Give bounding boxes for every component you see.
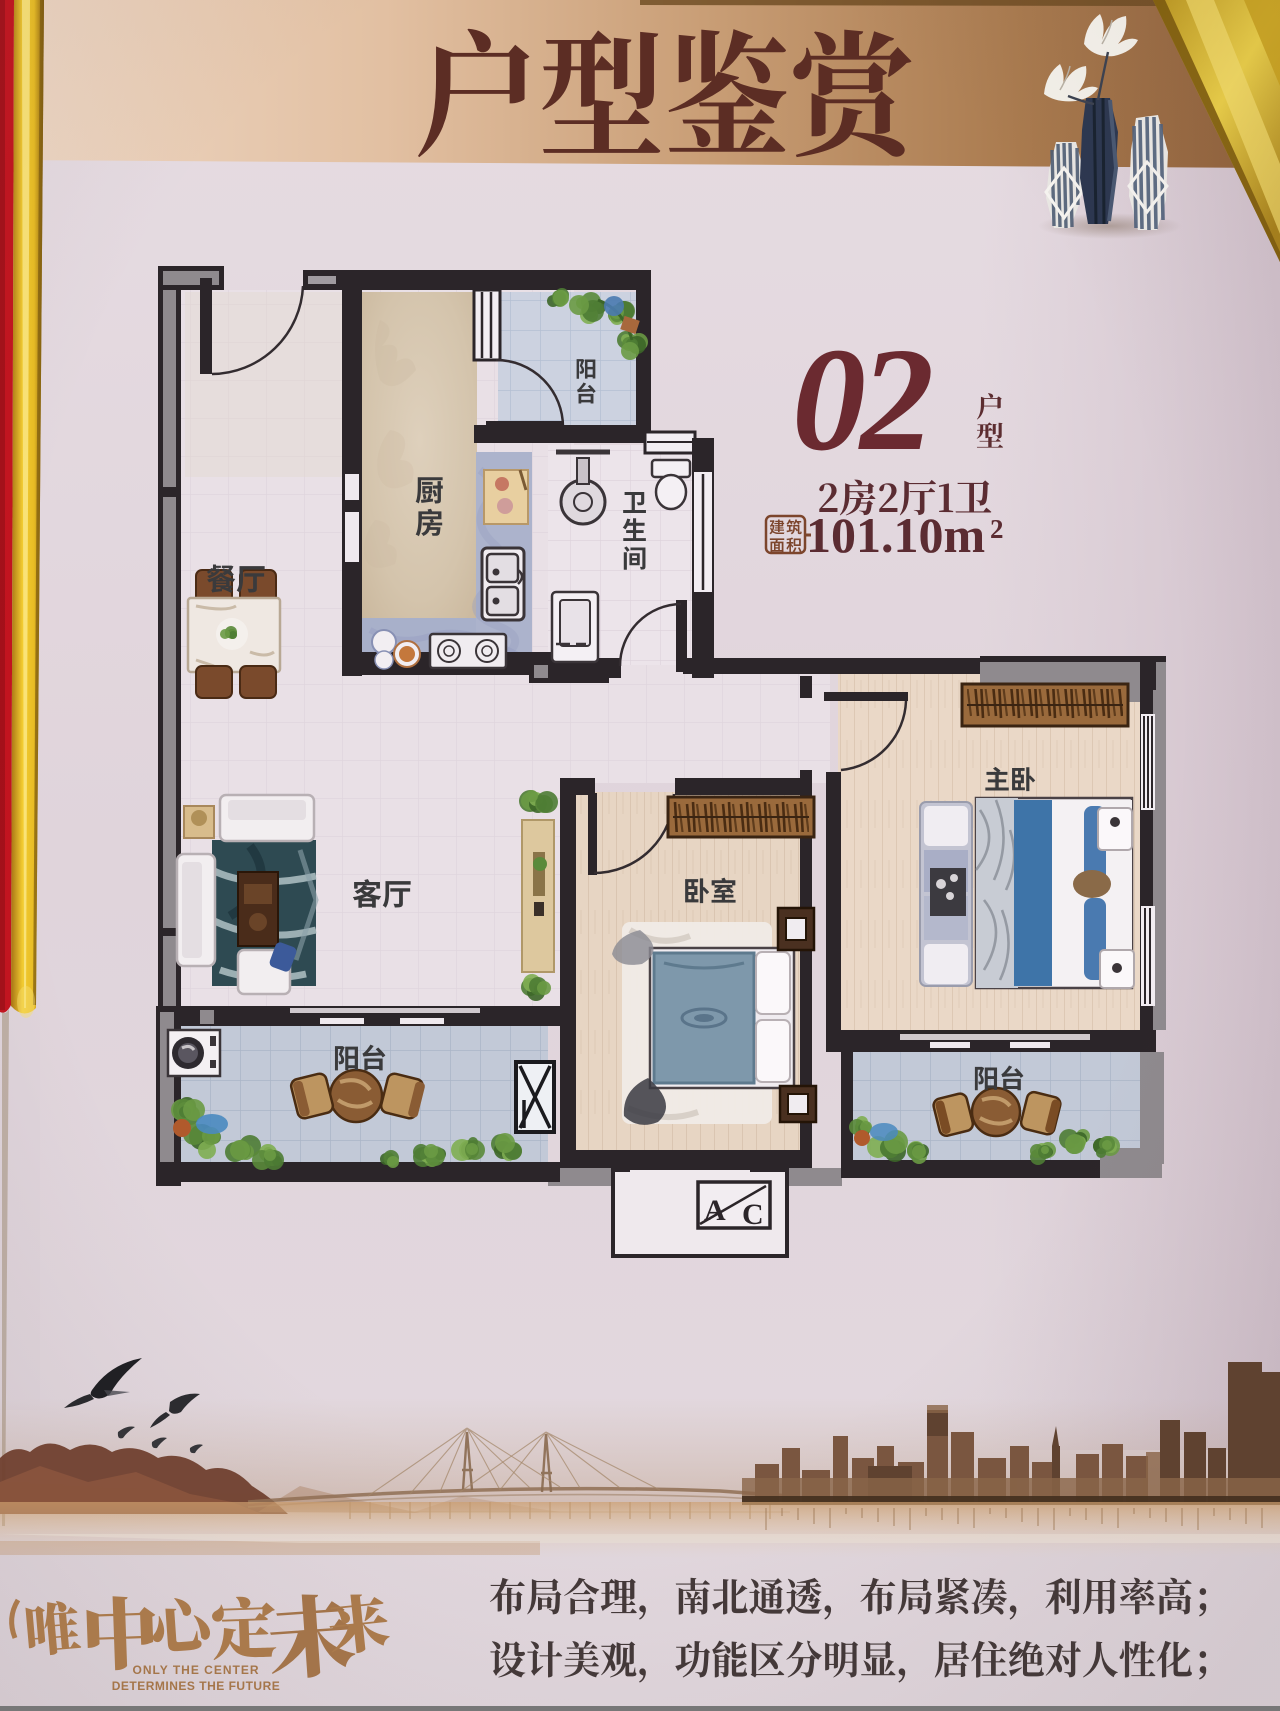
svg-text:DETERMINES THE FUTURE: DETERMINES THE FUTURE (112, 1679, 281, 1693)
svg-text:ONLY THE CENTER: ONLY THE CENTER (132, 1663, 259, 1677)
